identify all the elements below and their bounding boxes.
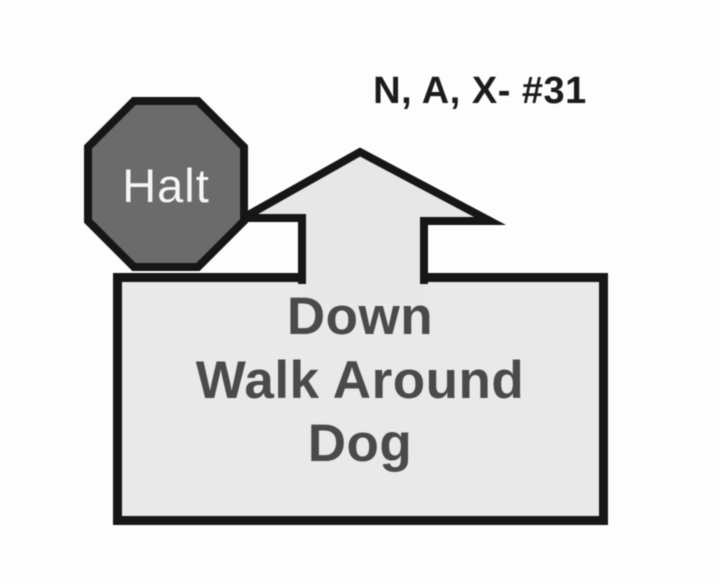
sign-diagram-canvas: N, A, X- #31 Halt Down Walk Around Dog [0, 0, 720, 578]
instruction-line-1: Down [287, 287, 433, 346]
class-level-label: N, A, X- #31 [373, 70, 587, 112]
rally-obedience-sign: N, A, X- #31 Halt Down Walk Around Dog [0, 0, 720, 578]
halt-label: Halt [122, 159, 210, 212]
instruction-line-2: Walk Around [196, 351, 524, 410]
instruction-line-3: Dog [308, 414, 413, 473]
